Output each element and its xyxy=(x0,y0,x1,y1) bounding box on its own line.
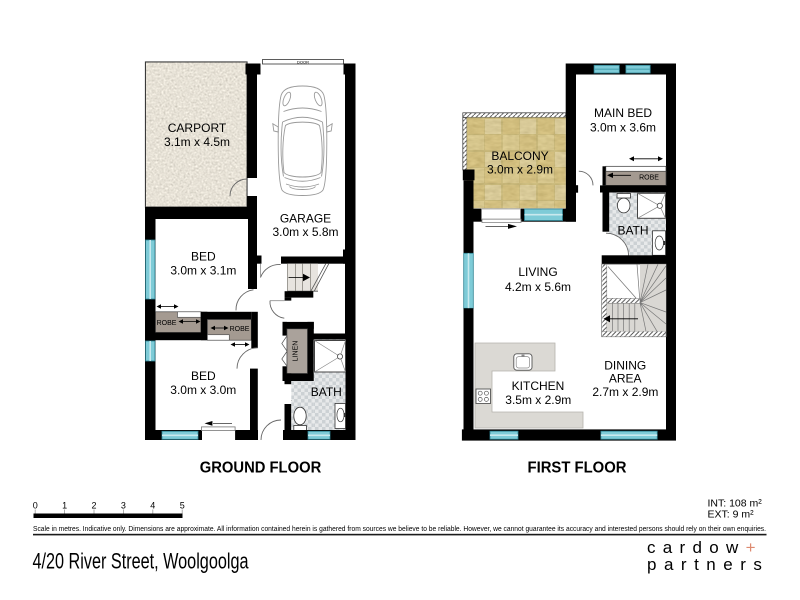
svg-text:MAIN BED: MAIN BED xyxy=(594,106,652,120)
svg-text:3.0m x 3.1m: 3.0m x 3.1m xyxy=(170,264,236,278)
svg-text:2.7m x 2.9m: 2.7m x 2.9m xyxy=(592,385,658,399)
svg-text:LINEN: LINEN xyxy=(293,341,300,362)
svg-text:BED: BED xyxy=(191,369,216,383)
svg-text:3: 3 xyxy=(121,501,126,511)
svg-text:Scale in metres. Indicative on: Scale in metres. Indicative only. Dimens… xyxy=(33,526,766,533)
svg-text:4: 4 xyxy=(150,501,155,511)
svg-text:GROUND FLOOR: GROUND FLOOR xyxy=(200,460,322,477)
svg-text:3.1m x 4.5m: 3.1m x 4.5m xyxy=(164,135,230,149)
svg-text:CARPORT: CARPORT xyxy=(168,121,227,135)
svg-text:BALCONY: BALCONY xyxy=(491,149,548,163)
svg-text:3.5m x 2.9m: 3.5m x 2.9m xyxy=(505,393,571,407)
svg-text:BED: BED xyxy=(191,250,216,264)
svg-text:3.0m x 2.9m: 3.0m x 2.9m xyxy=(487,163,553,177)
svg-text:BATH: BATH xyxy=(311,385,342,399)
svg-text:ROBE: ROBE xyxy=(639,174,659,181)
svg-text:INT: 108 m²: INT: 108 m² xyxy=(708,497,763,509)
svg-text:0: 0 xyxy=(33,501,38,511)
svg-text:FIRST FLOOR: FIRST FLOOR xyxy=(528,460,627,477)
svg-text:1: 1 xyxy=(62,501,67,511)
svg-text:KITCHEN: KITCHEN xyxy=(512,379,565,393)
svg-text:4.2m x 5.6m: 4.2m x 5.6m xyxy=(505,280,571,294)
svg-text:2: 2 xyxy=(91,501,96,511)
svg-text:DINING: DINING xyxy=(604,359,646,373)
svg-text:DOOR: DOOR xyxy=(297,59,309,64)
svg-text:ROBE: ROBE xyxy=(230,326,250,333)
svg-text:partners: partners xyxy=(647,555,769,574)
svg-text:3.0m x 3.0m: 3.0m x 3.0m xyxy=(170,383,236,397)
svg-text:BATH: BATH xyxy=(617,223,648,237)
svg-text:AREA: AREA xyxy=(609,372,642,386)
svg-text:GARAGE: GARAGE xyxy=(280,212,331,226)
svg-text:EXT: 9 m²: EXT: 9 m² xyxy=(708,509,755,521)
svg-text:LIVING: LIVING xyxy=(518,265,557,279)
svg-text:ROBE: ROBE xyxy=(157,320,177,327)
svg-text:4/20 River Street, Woolgoolga: 4/20 River Street, Woolgoolga xyxy=(33,549,249,574)
svg-text:3.0m x 3.6m: 3.0m x 3.6m xyxy=(590,121,656,135)
svg-text:5: 5 xyxy=(180,501,185,511)
svg-text:3.0m x 5.8m: 3.0m x 5.8m xyxy=(272,225,338,239)
